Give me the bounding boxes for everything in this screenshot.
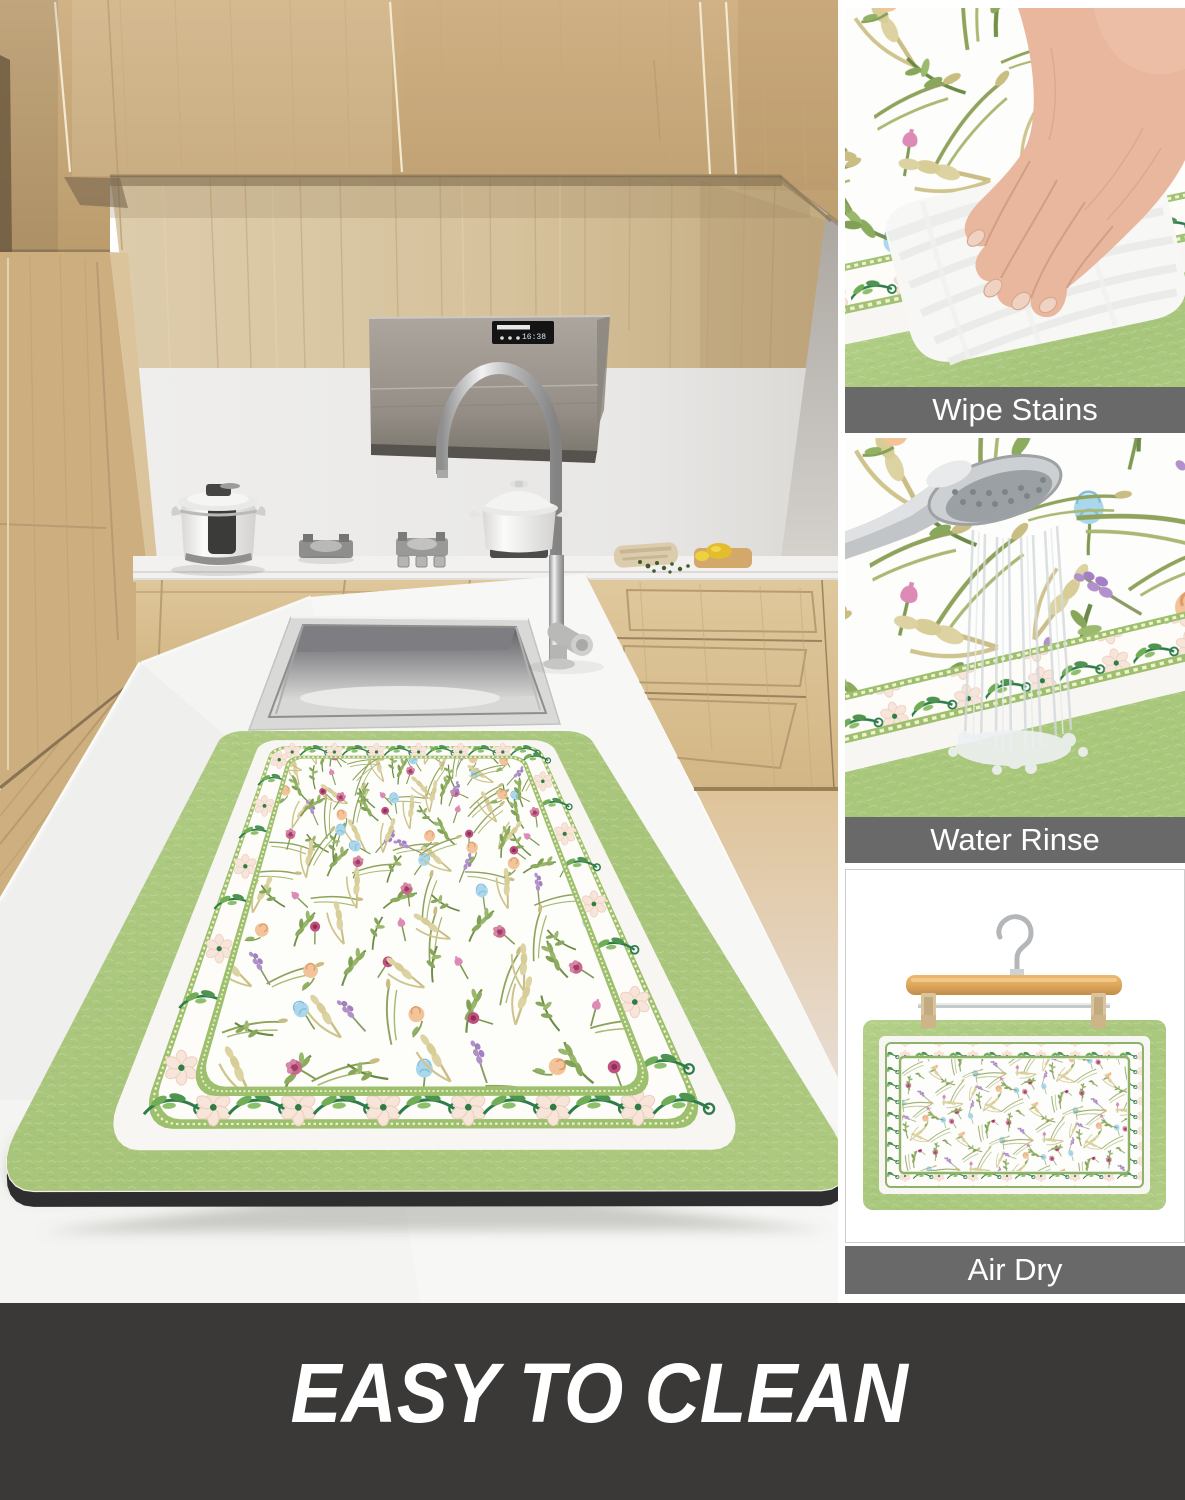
svg-text:16:38: 16:38 xyxy=(522,333,546,342)
